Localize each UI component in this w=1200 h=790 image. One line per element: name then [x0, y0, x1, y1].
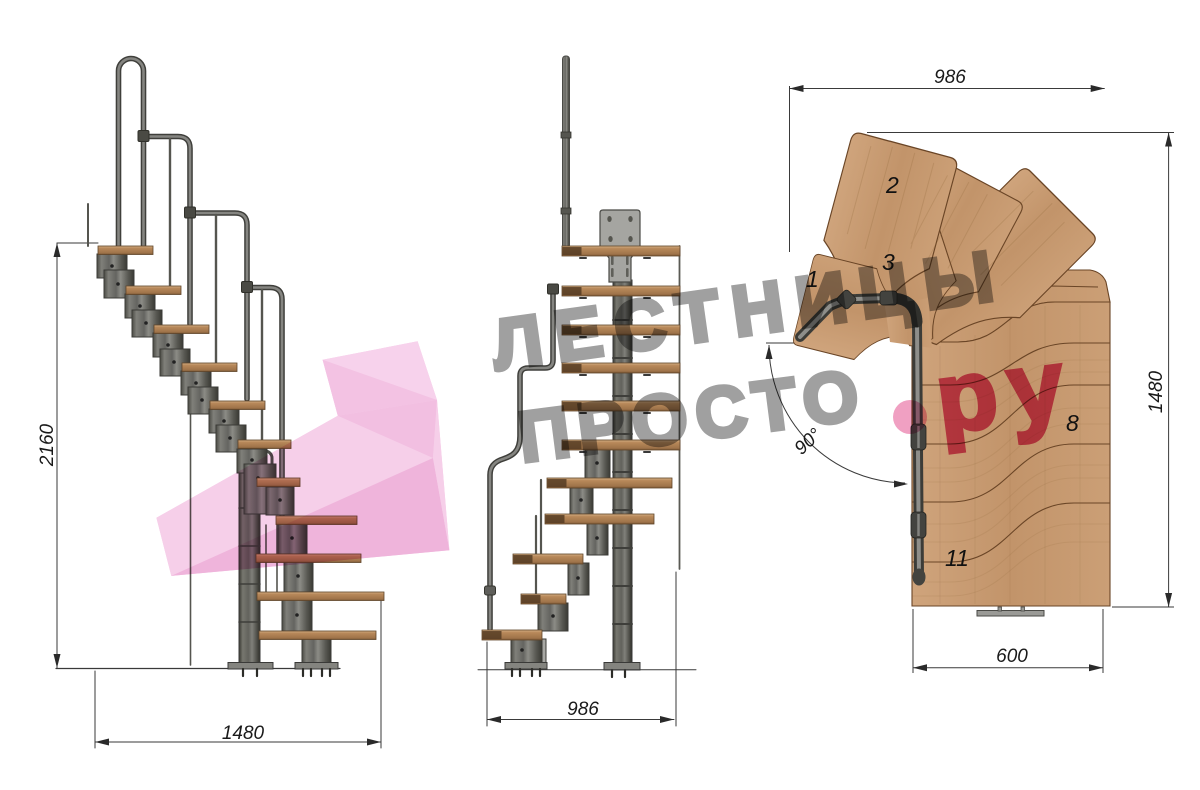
svg-text:11: 11	[945, 545, 969, 571]
svg-text:986: 986	[567, 699, 599, 720]
svg-text:1480: 1480	[1146, 370, 1167, 413]
svg-text:2: 2	[885, 172, 899, 198]
svg-text:ру: ру	[930, 326, 1083, 454]
svg-text:1480: 1480	[222, 723, 265, 744]
svg-text:986: 986	[934, 67, 966, 88]
svg-text:600: 600	[996, 646, 1028, 667]
svg-text:2160: 2160	[37, 423, 58, 467]
